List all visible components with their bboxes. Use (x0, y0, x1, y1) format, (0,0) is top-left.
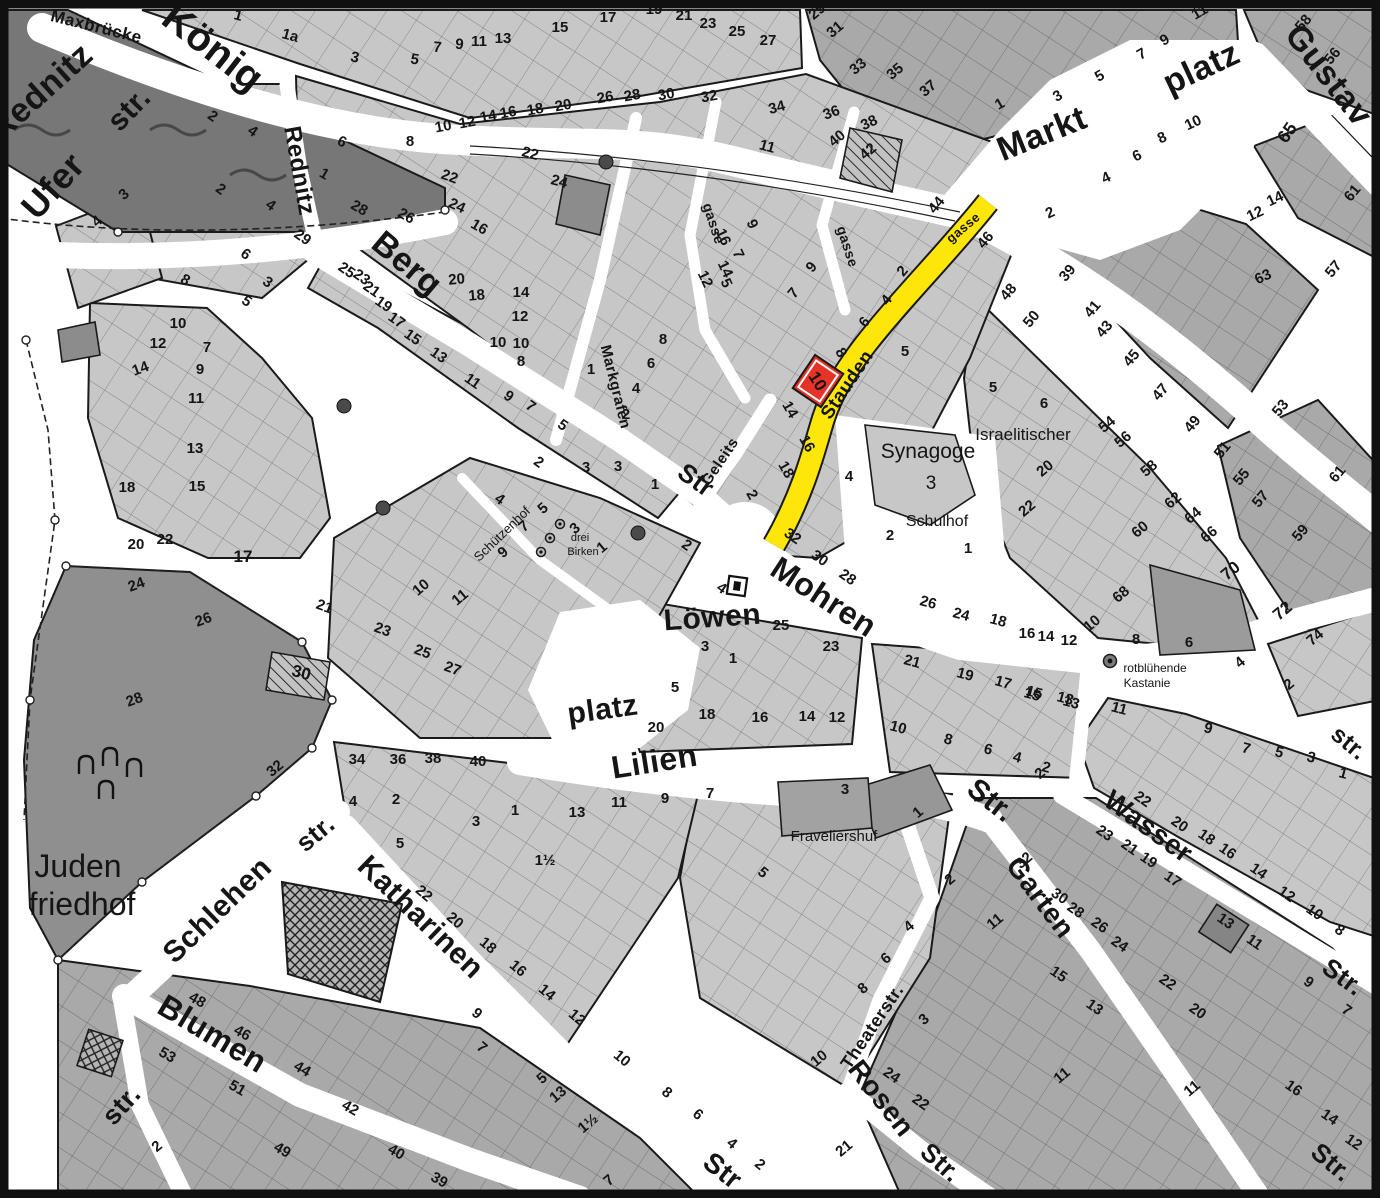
house-number: 6 (1040, 395, 1048, 412)
house-number: 8 (406, 133, 414, 150)
house-number: 18 (468, 286, 486, 304)
house-number: 13 (187, 440, 204, 457)
house-number: 11 (611, 794, 627, 811)
house-number: 10 (170, 315, 187, 332)
house-number: 21 (676, 7, 693, 24)
house-number: 1 (511, 802, 519, 819)
birch-tree-symbol (546, 534, 555, 543)
dark-building-west (58, 322, 100, 362)
house-number: 20 (448, 270, 466, 288)
house-number: 8 (517, 353, 525, 370)
building-dot-symbol (631, 526, 645, 540)
house-number: 3 (614, 458, 622, 475)
house-number: 40 (470, 753, 487, 770)
landmark-label: Synagoge (881, 440, 976, 463)
house-number: 25 (729, 23, 746, 40)
house-number: 10 (490, 334, 507, 351)
house-number: 11 (188, 390, 204, 407)
house-number: 17 (234, 547, 253, 566)
house-number: 16 (1019, 625, 1036, 642)
house-number: 25 (773, 617, 790, 634)
house-number: 3 (701, 638, 709, 655)
house-number: 1½ (535, 852, 556, 869)
fountain-symbol (727, 576, 747, 596)
landmark-label: Birken (567, 546, 598, 558)
house-number: 12 (150, 335, 167, 352)
landmark-label: Kastanie (1124, 676, 1171, 690)
house-number: 4 (632, 380, 641, 397)
landmark-label: rotblühende (1123, 661, 1187, 675)
house-number: 14 (1038, 628, 1055, 645)
house-number: 36 (390, 751, 407, 768)
birch-tree-symbol (556, 520, 565, 529)
house-number: 20 (648, 719, 665, 736)
house-number: 3 (841, 781, 849, 798)
birch-tree-symbol (537, 548, 546, 557)
house-number: 13 (569, 804, 586, 821)
house-number: 22 (157, 531, 174, 548)
house-number: 2 (886, 527, 894, 544)
house-number: 9 (661, 790, 669, 807)
house-number: 18 (699, 706, 716, 723)
house-number: 6 (1185, 634, 1193, 651)
house-number: 15 (189, 478, 206, 495)
landmark-label: Israelitischer (975, 425, 1071, 444)
house-number: 34 (349, 751, 366, 768)
house-number: 27 (760, 32, 777, 49)
building-dot-symbol (599, 155, 613, 169)
house-number: 32 (700, 87, 719, 107)
house-number: 14 (513, 284, 530, 301)
house-number: 14 (799, 708, 816, 725)
house-number: 5 (901, 343, 909, 360)
city-map-scan: 10 11a3579111315171921232527293133353713… (0, 0, 1380, 1198)
house-number: 20 (128, 536, 145, 553)
house-number: 23 (823, 638, 840, 655)
house-number: 1 (964, 540, 972, 557)
house-number: 17 (600, 9, 617, 26)
house-number: 18 (119, 479, 136, 496)
house-number: 1 (651, 476, 659, 493)
house-number: 1 (729, 650, 737, 667)
landmark-label: drei (571, 532, 589, 544)
house-number: 3 (582, 459, 590, 476)
house-number: 1 (587, 361, 595, 378)
house-number: 7 (706, 785, 714, 802)
house-number: 16 (752, 709, 769, 726)
house-number: 6 (647, 355, 655, 372)
street-label: Löwen (663, 598, 763, 638)
house-number: 4 (845, 468, 854, 485)
landmark-label: Fraveliershuf (791, 828, 879, 845)
house-number: 15 (552, 19, 569, 36)
landmark-label: 3 (926, 473, 937, 494)
house-number: 16 (499, 103, 518, 123)
house-number: 8 (659, 331, 667, 348)
house-number: 23 (700, 15, 717, 32)
house-number: 7 (203, 339, 211, 356)
house-number: 12 (458, 113, 477, 133)
landmark-label: friedhof (29, 886, 136, 922)
building-dot-symbol (376, 501, 390, 515)
chestnut-tree-symbol (1104, 655, 1117, 668)
map-canvas: 10 11a3579111315171921232527293133353713… (0, 0, 1380, 1198)
house-number: 9 (196, 361, 204, 378)
landmark-label: Juden (34, 848, 121, 884)
house-number: 13 (495, 30, 512, 47)
house-number: 9 (454, 36, 464, 54)
house-number: 20 (554, 96, 573, 116)
house-number: 5 (396, 835, 404, 852)
house-number: 7 (432, 39, 442, 57)
house-number: 2 (392, 791, 400, 808)
house-number: 11 (471, 33, 487, 50)
house-number: 26 (596, 88, 615, 108)
house-number: 12 (1061, 632, 1078, 649)
house-number: 18 (526, 100, 545, 120)
house-number: 28 (623, 86, 642, 106)
house-number: 8 (1132, 631, 1140, 648)
building-dot-symbol (337, 399, 351, 413)
house-number: 10 (434, 117, 453, 137)
landmark-label: Schulhof (906, 513, 969, 530)
house-number: 4 (349, 793, 358, 810)
house-number: 10 (513, 335, 530, 352)
house-number: 38 (425, 750, 442, 767)
house-number: 5 (989, 379, 997, 396)
house-number: 30 (657, 85, 676, 105)
house-number: 12 (512, 308, 529, 325)
house-number: 12 (829, 709, 846, 726)
house-number: 5 (671, 679, 679, 696)
house-number: 3 (472, 813, 480, 830)
